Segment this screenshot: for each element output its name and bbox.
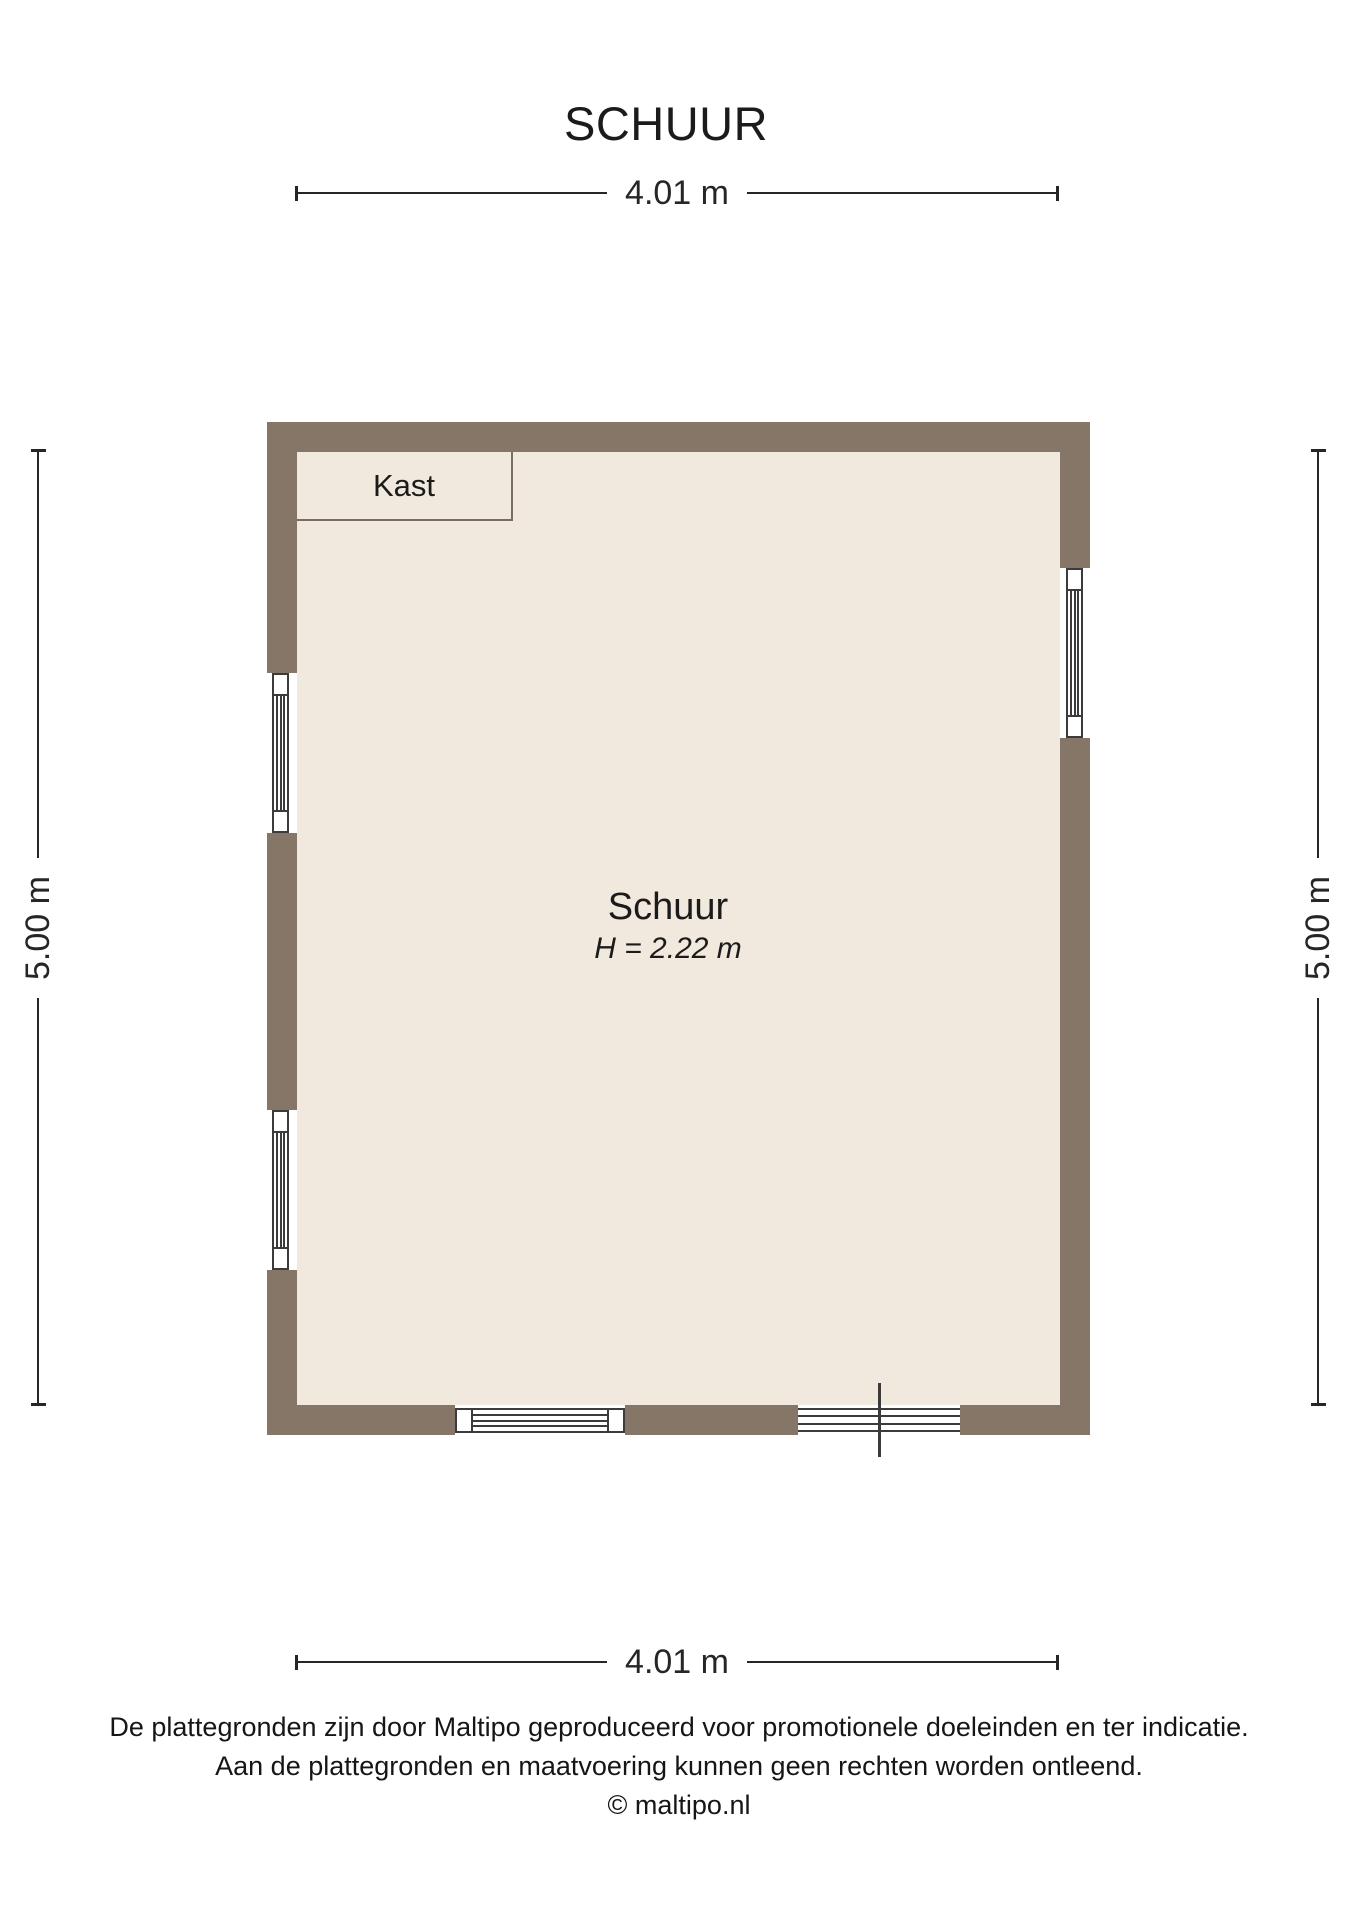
window-icon-left-1 <box>272 673 289 833</box>
dimension-line <box>747 192 1056 194</box>
dimension-right-label: 5.00 m <box>1300 848 1336 1008</box>
wall-left-segment-1 <box>267 452 297 673</box>
window-frame <box>274 1112 287 1133</box>
dimension-right-line <box>1317 998 1319 1405</box>
wall-left-segment-2 <box>267 833 297 1110</box>
window-icon-bottom <box>455 1408 625 1433</box>
dimension-tick <box>31 449 46 452</box>
footer-line-1: De plattegronden zijn door Maltipo gepro… <box>0 1712 1358 1743</box>
dimension-tick <box>31 1403 46 1406</box>
room-kast: Kast <box>297 452 513 521</box>
dimension-bottom-label: 4.01 m <box>625 1643 729 1682</box>
page-title: SCHUUR <box>0 96 1332 151</box>
wall-right-segment-1 <box>1060 452 1090 568</box>
dimension-tick <box>1056 1655 1059 1670</box>
window-glazing <box>274 696 287 810</box>
dimension-bottom: 4.01 m <box>295 1644 1059 1680</box>
window-icon-left-2 <box>272 1110 289 1270</box>
window-glazing <box>473 1410 607 1431</box>
dimension-right-line <box>1317 450 1319 858</box>
door-leaf-line <box>878 1383 881 1457</box>
footer-line-2: Aan de plattegronden en maatvoering kunn… <box>0 1751 1358 1782</box>
dimension-top-label: 4.01 m <box>625 174 729 213</box>
window-frame <box>274 1247 287 1268</box>
dimension-left-line <box>37 998 39 1405</box>
window-glazing <box>1068 591 1081 715</box>
dimension-tick <box>1311 1403 1326 1406</box>
wall-top <box>267 422 1090 452</box>
window-frame <box>274 675 287 696</box>
dimension-line <box>747 1661 1056 1663</box>
dimension-tick <box>1311 449 1326 452</box>
wall-bottom-segment-3 <box>960 1405 1090 1435</box>
dimension-top: 4.01 m <box>295 175 1059 211</box>
window-glazing <box>274 1133 287 1247</box>
room-schuur-height: H = 2.22 m <box>478 932 858 966</box>
dimension-left-line <box>37 450 39 858</box>
window-frame <box>1068 715 1081 736</box>
room-kast-label: Kast <box>373 468 435 504</box>
window-frame <box>274 810 287 831</box>
window-frame <box>607 1410 623 1431</box>
dimension-tick <box>1056 186 1059 201</box>
wall-bottom-segment-2 <box>625 1405 798 1435</box>
room-schuur: Schuur H = 2.22 m <box>478 886 858 966</box>
room-schuur-label: Schuur <box>478 886 858 929</box>
wall-bottom-segment-1 <box>267 1405 455 1435</box>
footer-disclaimer: De plattegronden zijn door Maltipo gepro… <box>0 1712 1358 1829</box>
window-icon-right <box>1066 568 1083 738</box>
dimension-line <box>298 1661 607 1663</box>
dimension-left-label: 5.00 m <box>20 848 56 1008</box>
dimension-line <box>298 192 607 194</box>
window-frame <box>1068 570 1081 591</box>
wall-right-segment-2 <box>1060 738 1090 1435</box>
window-frame <box>457 1410 473 1431</box>
footer-line-3: © maltipo.nl <box>0 1790 1358 1821</box>
